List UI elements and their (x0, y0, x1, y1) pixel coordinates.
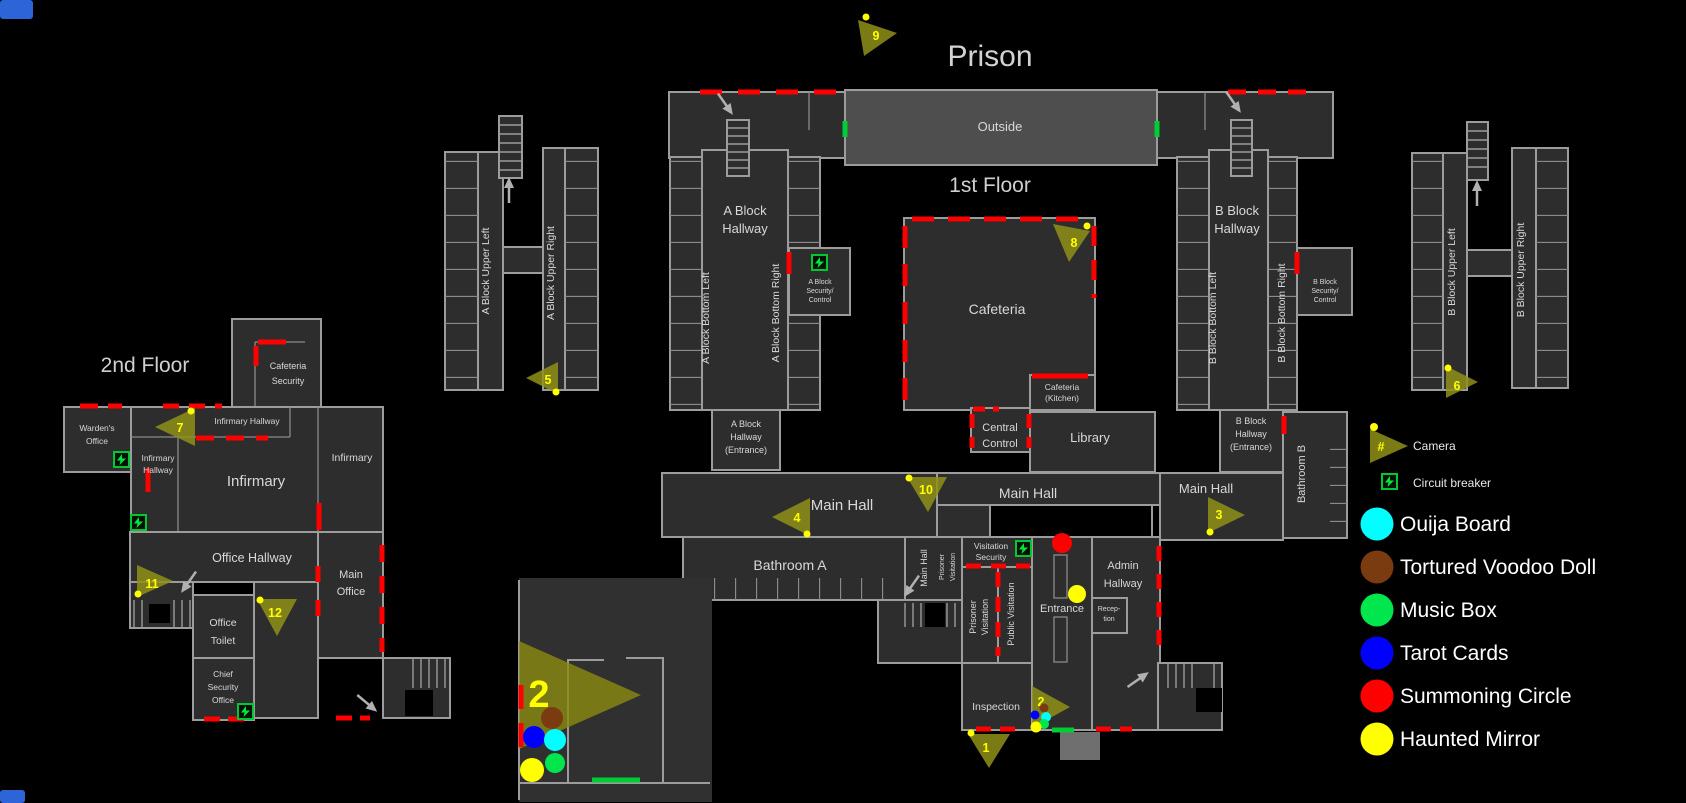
camera-4-number: 4 (794, 511, 801, 525)
label-office-hallway: Office Hallway (212, 551, 292, 565)
legend-haunted-mirror-label: Haunted Mirror (1400, 728, 1540, 751)
first-floor-title: 1st Floor (949, 174, 1031, 197)
arrow-2f-stairs (354, 691, 380, 715)
legend-breaker-label: Circuit breaker (1413, 476, 1491, 490)
label-outside: Outside (978, 119, 1023, 134)
cells-b-bottom-left-dividers (1177, 157, 1209, 410)
second-floor-title: 2nd Floor (101, 354, 190, 377)
camera-1-number: 1 (983, 741, 990, 755)
legend-tarot-cards-icon (1361, 637, 1394, 670)
legend-ouija-board-label: Ouija Board (1400, 513, 1511, 536)
label-reception: Recep- (1098, 606, 1121, 613)
label-central-control: Central (982, 422, 1017, 434)
label-a-block-upper-right: A Block Upper Right (545, 226, 557, 320)
label-a-block-bottom-right: A Block Bottom Right (770, 264, 782, 363)
tarot-cards-dot (1031, 711, 1040, 720)
label-a-block-security-2: Security/ (806, 288, 833, 295)
legend-summoning-circle-label: Summoning Circle (1400, 685, 1572, 708)
label-library: Library (1070, 430, 1110, 445)
label-prisoner-visitation-corridor: Prisoner (939, 553, 946, 580)
legend-music-box-label: Music Box (1400, 599, 1497, 622)
breaker-icon (114, 452, 129, 467)
partial-button-bottom-left[interactable] (0, 790, 25, 803)
camera-8-number: 8 (1071, 236, 1078, 250)
second-floor-rooms (64, 319, 450, 720)
breaker-icon (1016, 541, 1031, 556)
bridge-a-upper (503, 247, 543, 273)
camera-6-number: 6 (1454, 379, 1461, 393)
label-wardens-office-2: Office (86, 436, 108, 446)
label-a-block-entrance-3: (Entrance) (725, 445, 767, 455)
camera-5-number: 5 (545, 373, 552, 387)
bridge-b-upper (1467, 250, 1512, 276)
label-cafeteria: Cafeteria (969, 301, 1026, 317)
label-office-toilet-2: Toilet (211, 635, 236, 647)
label-chief-security-3: Office (212, 695, 234, 705)
legend-tarot-cards-label: Tarot Cards (1400, 642, 1509, 665)
label-infirmary-hallway-top: Infirmary Hallway (214, 416, 280, 426)
cells-a-upper-right-dividers (565, 148, 598, 390)
legend-summoning-circle-icon (1361, 680, 1394, 713)
partial-button-top-left[interactable] (0, 0, 33, 19)
camera-9-number: 9 (873, 29, 880, 43)
label-b-block-hallway: B Block (1215, 203, 1260, 218)
legend: # Camera Circuit breaker Ouija Board Tor… (1361, 423, 1597, 756)
camera-12-number: 12 (268, 606, 282, 620)
inset-music-box-dot (545, 753, 565, 773)
legend-music-box-icon (1361, 594, 1394, 627)
room-inspection (962, 663, 1032, 730)
room-main-hall-drop (937, 505, 990, 537)
legend-camera-icon (1370, 429, 1408, 463)
arrow-b-upper-stairs (1472, 180, 1482, 206)
breaker-icon (812, 255, 827, 270)
label-main-hall-left: Main Hall (811, 497, 874, 514)
label-b-block-upper-left: B Block Upper Left (1446, 228, 1458, 316)
label-b-block-security-2: Security/ (1311, 288, 1338, 295)
label-main-hall-vertical: Main Hall (919, 549, 929, 587)
entrance-pad (1060, 732, 1100, 760)
camera-7-number: 7 (177, 421, 184, 435)
label-admin-hallway-2: Hallway (1104, 578, 1143, 590)
label-kitchen: Cafeteria (1045, 382, 1080, 392)
camera-10-number: 10 (919, 483, 933, 497)
bathroom-b-stalls (1330, 435, 1347, 535)
breaker-icon (238, 704, 253, 719)
stairs-admin-notch (1196, 688, 1222, 712)
inset-ouija-board-dot (544, 729, 566, 751)
label-bathroom-a: Bathroom A (753, 557, 827, 573)
label-bathroom-b: Bathroom B (1296, 445, 1308, 503)
label-reception-2: tion (1103, 616, 1114, 623)
label-a-block-entrance-2: Hallway (730, 432, 762, 442)
label-b-block-security-3: Control (1314, 297, 1337, 304)
camera-3-number: 3 (1216, 508, 1223, 522)
stairs-visitation-notch (925, 603, 945, 627)
prison-map: 1 2 3 4 5 (0, 0, 1686, 803)
legend-voodoo-doll-icon (1361, 551, 1394, 584)
label-inspection: Inspection (972, 701, 1020, 713)
haunted-mirror-dot (1068, 585, 1086, 603)
label-a-block-upper-left: A Block Upper Left (480, 227, 492, 314)
label-b-block-bottom-left: B Block Bottom Left (1207, 272, 1219, 364)
label-b-block-security: B Block (1313, 279, 1337, 286)
breaker-icon (131, 515, 146, 530)
label-visitation-security: Visitation (974, 541, 1009, 551)
cells-a-upper-left-dividers (445, 152, 478, 390)
inset-haunted-mirror-dot (520, 758, 544, 782)
label-admin-hallway: Admin (1107, 560, 1138, 572)
summoning-circle-dot (1052, 533, 1072, 553)
camera-1: 1 (968, 730, 1011, 769)
legend-ouija-board-icon (1361, 508, 1394, 541)
stairs-2f-notch (405, 690, 433, 716)
room-visitation-stairs (878, 600, 962, 663)
bathroom-a-stalls (697, 578, 890, 600)
legend-breaker-icon (1382, 474, 1397, 489)
inset-tarot-cards-dot (523, 726, 545, 748)
label-infirmary-hallway: Infirmary (141, 453, 175, 463)
label-infirmary-hallway-2: Hallway (143, 465, 174, 475)
label-a-block-bottom-left: A Block Bottom Left (700, 272, 712, 364)
cells-b-upper-right-dividers (1536, 148, 1568, 388)
label-entrance: Entrance (1040, 603, 1084, 615)
cells-b-upper-left-dividers (1412, 153, 1443, 390)
label-b-block-bottom-right: B Block Bottom Right (1276, 263, 1288, 362)
label-infirmary-main: Infirmary (227, 473, 286, 490)
label-kitchen-2: (Kitchen) (1045, 393, 1079, 403)
room-a-block-top (669, 92, 845, 158)
cells-a-bottom-left-dividers (670, 157, 702, 410)
label-b-block-entrance: B Block (1236, 416, 1267, 426)
label-prisoner-visitation-corridor-2: Visitation (950, 553, 957, 581)
prison-map-viewer: 1 2 3 4 5 (0, 0, 1686, 803)
legend-camera-label: Camera (1413, 439, 1456, 453)
map-title: Prison (947, 40, 1032, 73)
label-a-block-entrance: A Block (731, 419, 762, 429)
legend-camera-symbol: # (1378, 440, 1385, 454)
haunted-mirror-dot-2 (1031, 722, 1042, 733)
label-public-visitation: Public Visitation (1006, 582, 1016, 645)
label-b-block-hallway-2: Hallway (1214, 221, 1260, 236)
magnified-inset: 2 (519, 578, 712, 802)
camera-11-number: 11 (145, 577, 158, 591)
voodoo-doll-dot (1040, 704, 1049, 713)
label-cafeteria-security-2: Security (272, 376, 305, 386)
label-a-block-security: A Block (808, 279, 832, 286)
label-main-office: Main (339, 569, 363, 581)
arrow-a-upper-stairs (504, 177, 514, 203)
camera-9: 9 (858, 14, 897, 57)
inset-voodoo-doll-dot (541, 707, 563, 729)
label-visitation-security-2: Security (976, 552, 1007, 562)
label-prisoner-visitation-2: Visitation (980, 599, 990, 635)
label-prisoner-visitation: Prisoner (968, 600, 978, 634)
label-central-control-2: Control (982, 438, 1017, 450)
label-cafeteria-security: Cafeteria (270, 361, 307, 371)
label-b-block-entrance-2: Hallway (1235, 429, 1267, 439)
label-a-block-hallway: A Block (723, 203, 767, 218)
label-main-hall-right: Main Hall (1179, 481, 1233, 496)
label-infirmary-right: Infirmary (332, 452, 374, 464)
label-a-block-security-3: Control (809, 297, 832, 304)
legend-voodoo-doll-label: Tortured Voodoo Doll (1400, 556, 1596, 579)
label-office-toilet: Office (209, 617, 236, 629)
label-main-hall-center: Main Hall (999, 485, 1057, 501)
legend-camera-dot (1370, 423, 1378, 431)
legend-haunted-mirror-icon (1361, 723, 1394, 756)
label-b-block-entrance-3: (Entrance) (1230, 442, 1272, 452)
label-b-block-upper-right: B Block Upper Right (1515, 223, 1527, 318)
label-chief-security-2: Security (208, 682, 239, 692)
stairs-office-notch (149, 604, 170, 623)
label-a-block-hallway-2: Hallway (722, 221, 768, 236)
label-chief-security: Chief (213, 669, 233, 679)
label-wardens-office: Warden's (79, 423, 114, 433)
label-main-office-2: Office (337, 586, 366, 598)
